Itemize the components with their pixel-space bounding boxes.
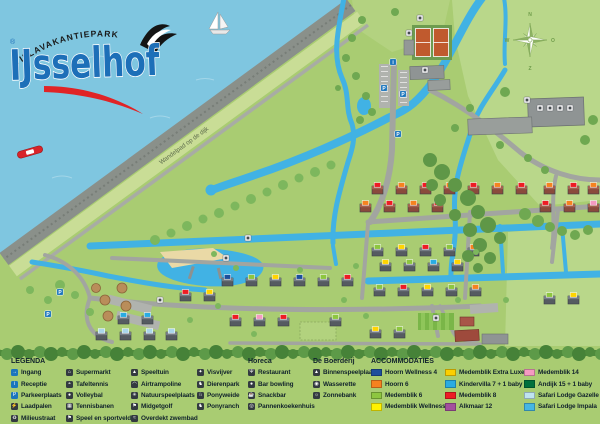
compass-e: O — [551, 38, 555, 44]
compass-s: Z — [528, 66, 531, 72]
tennis-courts — [412, 25, 452, 60]
logo-name: IJsselhof — [9, 36, 161, 90]
park-map: P Wandelpad op de dijk — [0, 0, 600, 423]
compass-n: N — [528, 12, 532, 18]
map-canvas: P Wandelpad op de dijk — [0, 0, 600, 423]
compass-w: W — [505, 38, 510, 44]
